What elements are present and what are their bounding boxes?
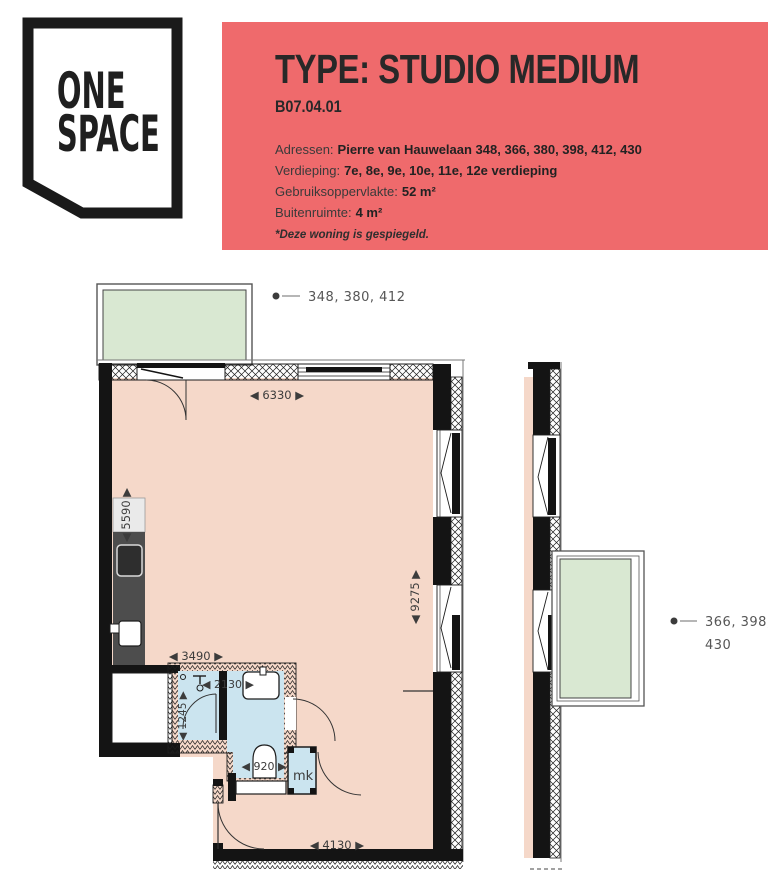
detail-label: Adressen: <box>275 142 334 157</box>
dim-wc: ◀ 920 ▶ <box>242 760 287 773</box>
detail-gebruiksoppervlakte: Gebruiksoppervlakte:52 m² <box>275 181 768 202</box>
detail-value: 7e, 8e, 9e, 10e, 11e, 12e verdieping <box>344 163 557 178</box>
dim-bathroom-width: ◀ 2130 ▶ <box>202 678 254 691</box>
kitchen-sink <box>119 621 141 646</box>
leader-right-label-line2: 430 <box>705 638 731 653</box>
onespace-logo: ONE SPACE <box>0 0 210 240</box>
leader-right-label-line1: 366, 398, <box>705 615 768 630</box>
fragment-window-1 <box>533 435 560 517</box>
page-title: TYPE: STUDIO MEDIUM <box>275 46 669 93</box>
dim-right: ◀ 9275 ▶ <box>408 570 422 624</box>
balcony-top-left <box>97 284 252 365</box>
brochure-page: ONE SPACE TYPE: STUDIO MEDIUM B07.04.01 … <box>0 0 768 888</box>
leader-dot <box>273 293 280 300</box>
leader-right: 366, 398, 430 <box>671 615 768 653</box>
detail-adressen: Adressen:Pierre van Hauwelaan 348, 366, … <box>275 139 768 160</box>
logo-text-space: SPACE <box>57 105 160 164</box>
detail-buitenruimte: Buitenruimte:4 m² <box>275 202 768 223</box>
threshold <box>236 781 286 794</box>
leader-left-label: 348, 380, 412 <box>308 290 405 305</box>
dim-hall: ◀ 4130 ▶ <box>310 838 364 852</box>
leader-left: 348, 380, 412 <box>273 290 406 305</box>
unit-code: B07.04.01 <box>275 97 694 117</box>
balcony-right <box>552 551 644 706</box>
detail-label: Verdieping: <box>275 163 340 178</box>
detail-value: Pierre van Hauwelaan 348, 366, 380, 398,… <box>338 142 642 157</box>
dim-kitchen-length: ◀ 5590 ▶ <box>119 488 133 542</box>
bottom-wall <box>213 849 463 869</box>
sink-faucet <box>110 624 119 633</box>
header-banner: TYPE: STUDIO MEDIUM B07.04.01 Adressen:P… <box>222 22 768 250</box>
detail-value: 52 m² <box>402 184 436 199</box>
right-window-2 <box>437 585 462 672</box>
dim-top: ◀ 6330 ▶ <box>250 388 304 402</box>
mirrored-note: *Deze woning is gespiegeld. <box>275 229 768 241</box>
unit-details: Adressen:Pierre van Hauwelaan 348, 366, … <box>275 139 768 223</box>
left-wall <box>99 363 112 757</box>
top-window <box>298 364 390 380</box>
cooktop <box>117 545 142 576</box>
mk-label: mk <box>293 769 314 784</box>
detail-verdieping: Verdieping:7e, 8e, 9e, 10e, 11e, 12e ver… <box>275 160 768 181</box>
leader-dot <box>671 618 678 625</box>
dim-kitchen-width: ◀ 3490 ▶ <box>169 649 223 663</box>
right-window-1 <box>437 430 462 517</box>
right-wall <box>433 360 463 862</box>
detail-label: Buitenruimte: <box>275 205 352 220</box>
detail-label: Gebruiksoppervlakte: <box>275 184 398 199</box>
dim-bathroom-height: ◀ 1245 ▶ <box>177 690 189 740</box>
detail-value: 4 m² <box>356 205 383 220</box>
